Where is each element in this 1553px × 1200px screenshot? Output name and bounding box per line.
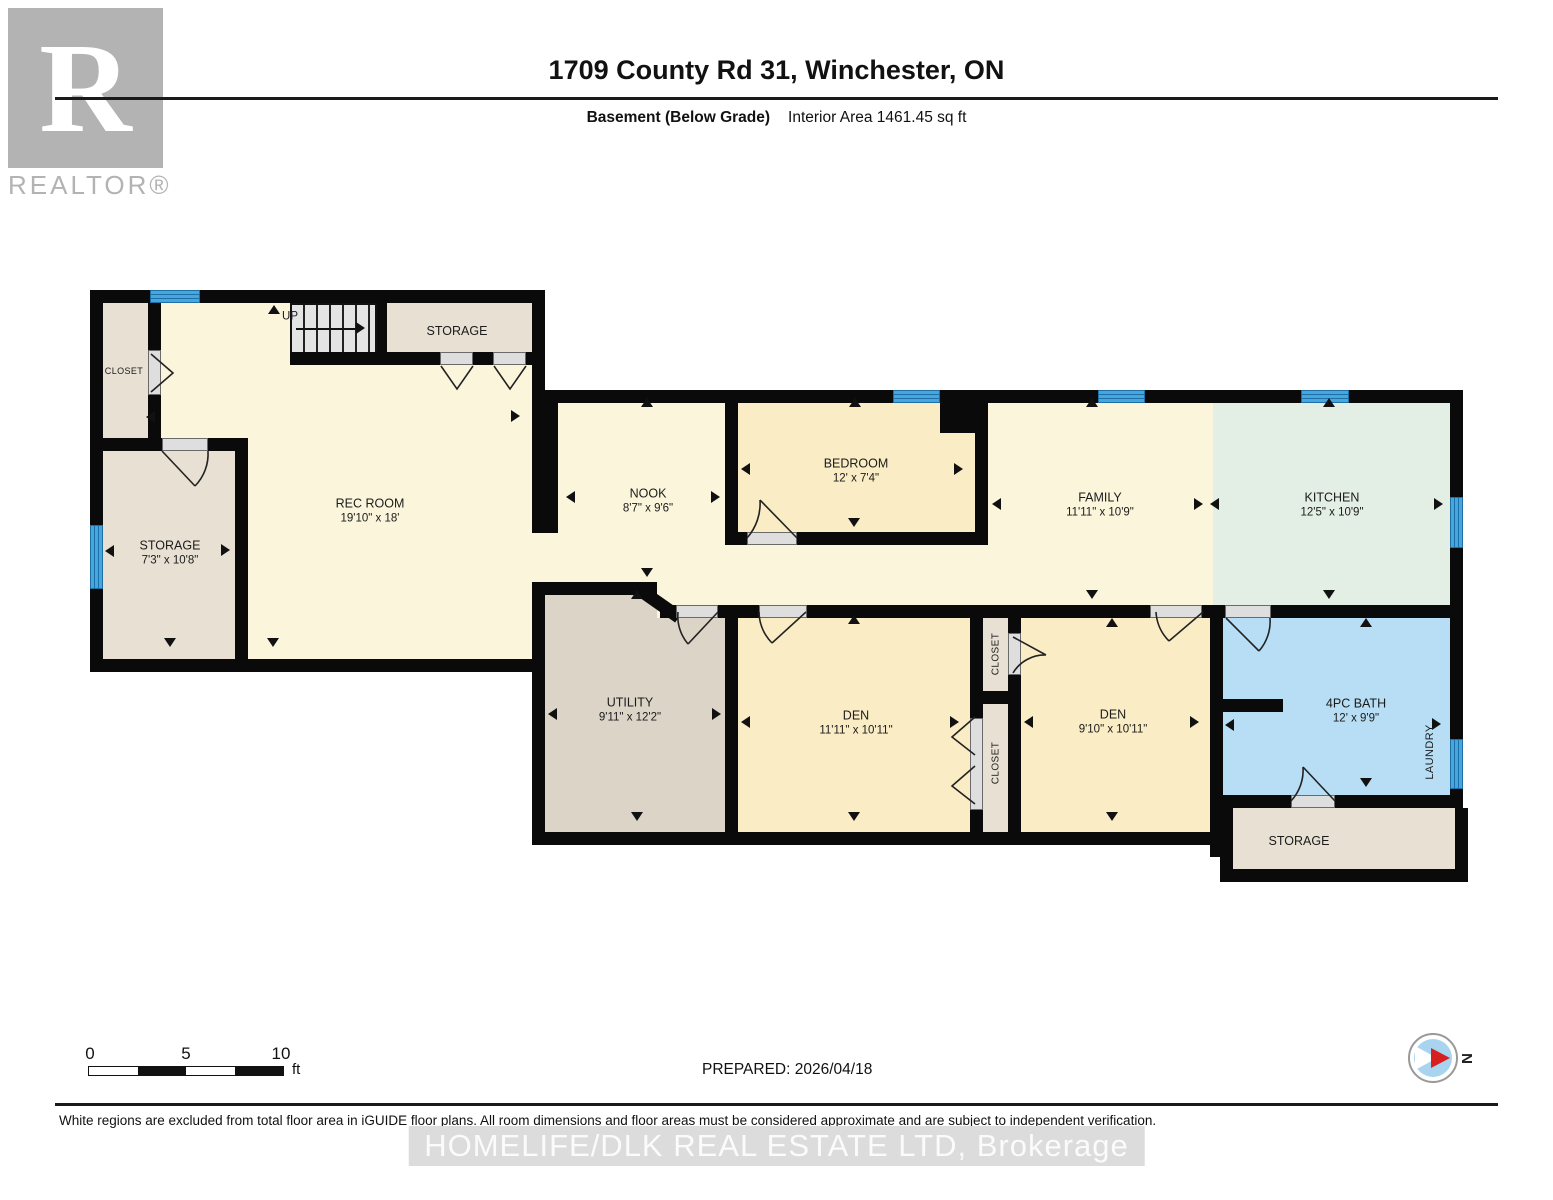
- camera-arrow: [631, 812, 643, 821]
- camera-arrow: [992, 498, 1001, 510]
- camera-arrow: [1190, 716, 1199, 728]
- room-label-utility: UTILITY 9'11" x 12'2": [599, 694, 661, 725]
- camera-arrow: [146, 411, 155, 423]
- scale-tick-5: 5: [181, 1044, 190, 1064]
- compass-icon: [1408, 1033, 1458, 1083]
- camera-arrow: [1086, 398, 1098, 407]
- camera-arrow: [712, 708, 721, 720]
- room-label-storage-bottom-right: STORAGE: [1269, 833, 1330, 849]
- camera-arrow: [1106, 618, 1118, 627]
- scale-tick-10: 10: [272, 1044, 291, 1064]
- camera-arrow: [1106, 812, 1118, 821]
- door-arc: [1291, 767, 1335, 801]
- camera-arrow: [1323, 590, 1335, 599]
- room-label-rec-room: REC ROOM 19'10" x 18': [336, 495, 405, 526]
- camera-arrow: [849, 398, 861, 407]
- camera-arrow: [105, 545, 114, 557]
- camera-arrow: [848, 812, 860, 821]
- scale-unit: ft: [292, 1061, 300, 1078]
- bifold-door-chevron: [151, 354, 173, 392]
- camera-arrow: [741, 716, 750, 728]
- prepared-date: PREPARED: 2026/04/18: [702, 1061, 872, 1079]
- room-label-kitchen: KITCHEN 12'5" x 10'9": [1300, 489, 1363, 520]
- camera-arrow: [741, 463, 750, 475]
- camera-arrow: [954, 463, 963, 475]
- room-label-den-right: DEN 9'10" x 10'11": [1079, 706, 1148, 737]
- camera-arrow: [511, 410, 520, 422]
- camera-arrow: [267, 638, 279, 647]
- room-label-closet-mid-bottom: CLOSET: [990, 742, 1003, 784]
- door-arc: [162, 451, 208, 486]
- room-label-family: FAMILY 11'11" x 10'9": [1066, 489, 1134, 520]
- camera-arrow: [1194, 498, 1203, 510]
- camera-arrow: [641, 398, 653, 407]
- camera-arrow: [1434, 498, 1443, 510]
- camera-arrow: [566, 491, 575, 503]
- door-arc: [747, 500, 797, 538]
- room-label-den-left: DEN 11'11" x 10'11": [819, 707, 892, 738]
- room-label-closet-mid-top: CLOSET: [990, 633, 1003, 675]
- camera-arrow: [950, 716, 959, 728]
- door-arc: [1156, 612, 1203, 641]
- footer-rule: [55, 1103, 1498, 1106]
- room-label-bath: 4PC BATH 12' x 9'9": [1326, 695, 1386, 726]
- camera-arrow: [164, 638, 176, 647]
- brokerage-watermark: HOMELIFE/DLK REAL ESTATE LTD, Brokerage: [408, 1126, 1145, 1166]
- scale-tick-0: 0: [85, 1044, 94, 1064]
- camera-arrow: [221, 544, 230, 556]
- room-label-storage-top: STORAGE: [427, 323, 488, 339]
- camera-arrow: [1323, 398, 1335, 407]
- camera-arrow: [1024, 716, 1033, 728]
- room-label-nook: NOOK 8'7" x 9'6": [623, 485, 673, 516]
- door-arc: [1226, 618, 1270, 651]
- room-label-bedroom: BEDROOM 12' x 7'4": [824, 455, 889, 486]
- camera-arrow: [641, 568, 653, 577]
- room-label-stairs-up: UP: [282, 310, 298, 325]
- door-swing-layer: [0, 0, 1553, 1200]
- camera-arrow: [631, 590, 643, 599]
- bifold-door-chevrons: [952, 717, 975, 804]
- camera-arrow: [1360, 778, 1372, 787]
- scale-bar: [88, 1066, 284, 1076]
- camera-arrow: [1225, 719, 1234, 731]
- camera-arrow: [1210, 498, 1219, 510]
- camera-arrow: [1086, 590, 1098, 599]
- camera-arrow: [848, 615, 860, 624]
- camera-arrow: [711, 491, 720, 503]
- camera-arrow: [848, 518, 860, 527]
- room-label-storage-left: STORAGE 7'3" x 10'8": [140, 537, 201, 568]
- camera-arrow: [548, 708, 557, 720]
- double-door-chevrons: [441, 366, 526, 389]
- door-arc: [1013, 637, 1046, 673]
- door-arc: [759, 612, 806, 643]
- door-arc: [678, 612, 718, 644]
- camera-arrow: [1360, 618, 1372, 627]
- room-label-laundry: LAUNDRY: [1423, 724, 1437, 779]
- room-label-closet-left: CLOSET: [105, 366, 143, 378]
- compass-north-label: N: [1458, 1053, 1475, 1064]
- floor-plan-page: R REALTOR® 1709 County Rd 31, Winchester…: [0, 0, 1553, 1200]
